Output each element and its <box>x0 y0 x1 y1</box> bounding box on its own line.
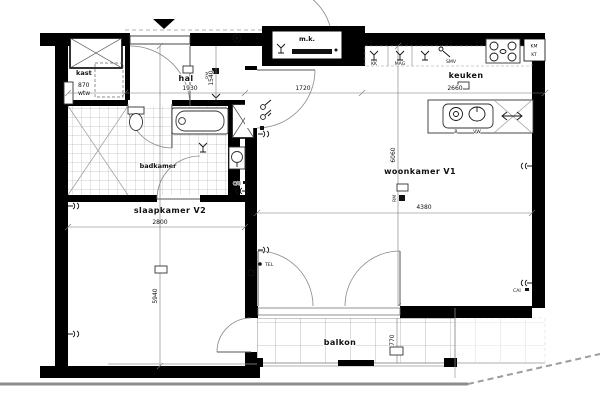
socket-icon <box>258 131 269 137</box>
socket-icon <box>521 280 532 286</box>
railing-post <box>338 360 374 366</box>
room-badkamer: badkamer CAI <box>68 104 254 202</box>
room-mk: m.k. <box>262 0 365 66</box>
badkamer-label: badkamer <box>140 162 178 170</box>
mag-label: MAG <box>395 61 406 67</box>
neighbor-balkon-floor <box>455 318 545 363</box>
woonkamer-label: woonkamer V1 <box>384 167 456 176</box>
slaapkamer-label: slaapkamer V2 <box>134 206 206 215</box>
socket-icon <box>521 163 532 169</box>
doorbell-dot <box>236 37 239 40</box>
toilet-icon <box>128 107 144 131</box>
washbasin-icon <box>229 147 245 169</box>
socket-icon <box>68 203 79 209</box>
balkon-marker <box>390 347 403 355</box>
woonkamer-height-dim: 6060 <box>390 147 397 162</box>
bathtub-icon <box>172 108 228 134</box>
key-switch-icon <box>439 47 450 57</box>
sink-icon <box>443 104 493 128</box>
stove-icon <box>486 39 520 63</box>
km-label: KM <box>531 44 538 50</box>
divider-wall <box>245 128 257 306</box>
wall-panel <box>155 266 167 273</box>
kitchen-island: B VW <box>428 100 533 135</box>
tel-label: TEL <box>264 262 274 268</box>
mk-door-arc <box>276 0 330 26</box>
smv-label: SMV <box>446 59 457 65</box>
slaapkamer-height-dim: 5940 <box>152 288 159 303</box>
socket-icon <box>258 247 269 253</box>
balcony-door-arc-left <box>258 251 313 306</box>
dimension-chain: 1930 1720 2660 <box>65 85 548 96</box>
boiler-label: B <box>454 129 457 135</box>
vw-label: VW <box>473 129 481 135</box>
meter-board <box>292 49 332 54</box>
hal-label: hal <box>178 74 193 83</box>
smoke-detector-icon <box>399 195 405 201</box>
light-icon <box>396 51 404 60</box>
floorplan-drawing: balkon 1770 <box>0 0 600 400</box>
kast-wtw-label: wtw <box>78 90 90 97</box>
light-icon <box>421 51 429 60</box>
entrance-threshold <box>130 36 190 44</box>
switch-icon <box>261 100 271 109</box>
right-wall <box>532 33 545 308</box>
entrance-arrow-icon <box>153 19 175 29</box>
smoke-detector-icon <box>260 126 264 130</box>
kt-label: KT <box>531 52 537 58</box>
bottom-wall-left <box>40 366 260 378</box>
thermostat <box>397 184 408 191</box>
room-kast: kast 870 wtw <box>64 38 123 104</box>
kast-label: kast <box>76 69 92 77</box>
floorplan: balkon 1770 <box>0 0 600 400</box>
hal-width-dim: 1930 <box>182 85 197 92</box>
room-slaapkamer: slaapkamer V2 2800 5940 <box>65 43 257 369</box>
hal-height-dim: 1540 <box>208 70 215 85</box>
socket-icon <box>68 331 79 337</box>
woonkamer-rm-label: RM <box>392 195 398 202</box>
mk-span-dim: 1720 <box>295 85 310 92</box>
balkon-label: balkon <box>324 338 357 347</box>
switch-icon <box>261 110 271 119</box>
thermostat <box>183 66 193 73</box>
tel-dot <box>258 262 262 266</box>
woonkamer-cai-label: CAI <box>513 288 521 294</box>
kk-label: KK <box>371 61 378 67</box>
keuken-label: keuken <box>449 71 484 80</box>
mk-label: m.k. <box>299 35 315 43</box>
badkamer-cai-label: CAI <box>233 181 241 187</box>
woonkamer-width-dim: 4380 <box>416 204 431 211</box>
keuken-width-dim: 2660 <box>447 85 462 92</box>
kast-dim: 870 <box>78 82 90 89</box>
room-balkon: balkon 1770 <box>250 318 545 367</box>
top-wall-b <box>190 33 265 46</box>
balcony-door-arc-right <box>345 251 400 306</box>
light-icon <box>370 51 378 60</box>
woonkamer-door-arc <box>257 70 315 128</box>
